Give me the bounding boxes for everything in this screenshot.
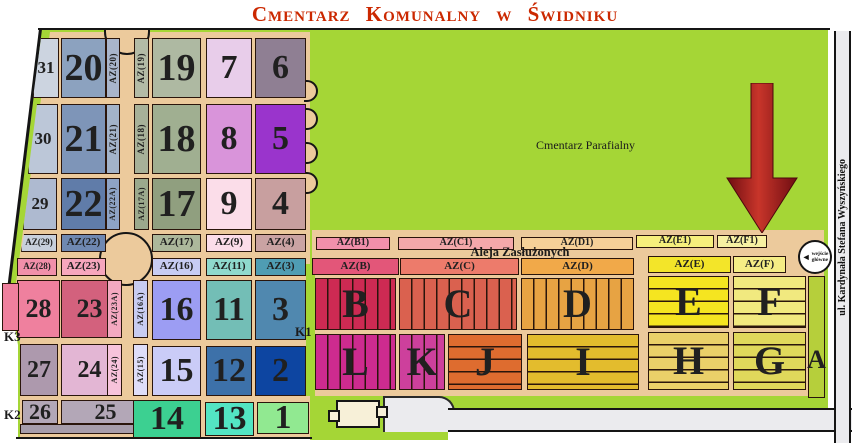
label-azb-label: AZ(B) [341,262,371,271]
section-21-label: 21 [65,123,103,155]
label-az28-label: AZ(28) [23,263,51,271]
section-f-label: F [757,285,781,319]
strip-az21: AZ(21) [106,104,120,174]
section-20: 20 [61,38,106,98]
section-16-label: 16 [160,296,194,325]
section-e-label: E [675,285,702,319]
section-28-label: 28 [26,298,52,320]
section-i: I [527,334,639,390]
section-a: A [808,276,825,398]
strip-az17a-label: AZ(17A) [138,187,146,221]
building-knob-left [328,410,340,422]
section-23-label: 23 [77,298,103,320]
section-h: H [648,332,729,390]
label-azf1-label: AZ(F1) [726,237,758,246]
section-d-label: D [563,287,592,321]
section-3-label: 3 [272,296,289,325]
strip-az16a-label: AZ(16A) [137,292,145,326]
section-1-label: 1 [275,404,292,433]
label-az11-label: AZ(11) [213,262,246,271]
label-az17-label: AZ(17) [160,238,194,247]
section-6: 6 [255,38,306,98]
strip-az20-label: AZ(20) [109,53,118,84]
section-k: K [399,334,445,390]
section-b-label: B [342,287,369,321]
section-8-label: 8 [221,125,238,154]
section-8: 8 [206,104,252,174]
section-29-label: 29 [32,197,49,211]
label-az16-label: AZ(16) [160,262,194,271]
label-azc-label: AZ(C) [444,262,475,271]
section-19-label: 19 [158,52,196,84]
entrance-label: wejście główne [812,251,829,263]
section-22-label: 22 [65,188,103,220]
section-h-label: H [673,344,704,378]
location-arrow-icon [726,83,798,233]
section-4: 4 [255,178,306,230]
section-13-label: 13 [213,405,247,434]
label-az16: AZ(16) [152,258,201,276]
section-16: 16 [152,280,201,340]
section-24-label: 24 [78,360,102,380]
parish-cemetery-label: Cmentarz Parafialny [536,138,635,153]
strip-az15-label: AZ(15) [137,356,145,383]
section-17-label: 17 [158,188,196,220]
label-az17: AZ(17) [152,234,201,252]
path-roundabout [99,232,153,286]
label-azf: AZ(F) [733,256,786,273]
label-azb1-label: AZ(B1) [337,239,369,248]
label-aze: AZ(E) [648,256,731,273]
section-2: 2 [255,346,306,396]
section-l-label: L [342,345,369,379]
label-aze-label: AZ(E) [675,260,705,269]
section-f: F [733,276,806,328]
label-aze1: AZ(E1) [636,235,714,248]
strip-az22a: AZ(22A) [106,178,120,230]
label-az4-label: AZ(4) [266,238,294,247]
section-b: B [315,278,396,330]
gate-k2-label: K2 [4,407,21,423]
label-azd: AZ(D) [521,258,634,275]
section-g-label: G [754,344,785,378]
label-azb1: AZ(B1) [316,237,390,250]
section-d: D [521,278,634,330]
section-9: 9 [206,178,252,230]
section-22: 22 [61,178,106,230]
aleja-zasluzonych-label: Aleja Zasłużonych [420,245,620,260]
section-31-label: 31 [38,61,55,75]
label-az23-label: AZ(23) [67,262,101,271]
cemetery-map: Cmentarz Komunalny w Świdniku 3120AZ(20)… [0,0,852,443]
label-az22: AZ(22) [61,234,106,252]
label-azf1: AZ(F1) [717,235,767,248]
section-18-label: 18 [158,123,196,155]
bottom-road [448,408,852,432]
section-28: 28 [17,280,60,338]
gate-k1-label: K1 [295,324,312,340]
label-az3-label: AZ(3) [266,262,294,271]
label-aze1-label: AZ(E1) [659,237,691,246]
label-azf-label: AZ(F) [745,260,774,269]
section-j: J [448,334,522,390]
section-2-label: 2 [272,357,289,386]
label-az11: AZ(11) [206,258,252,276]
strip-az24: AZ(24) [107,344,122,396]
strip-az16a: AZ(16A) [133,280,148,338]
strip-az24-label: AZ(24) [111,356,119,383]
section-5: 5 [255,104,306,174]
section-c-label: C [444,287,473,321]
strip-az22a-label: AZ(22A) [109,187,117,221]
label-az29-label: AZ(29) [25,239,53,247]
entrance-arrow-icon: ◄ [802,253,811,262]
strip-az20: AZ(20) [106,38,120,98]
main-entrance-marker: ◄ wejście główne [798,240,832,274]
label-az4: AZ(4) [255,234,306,252]
label-az28: AZ(28) [17,258,57,276]
strip-az19: AZ(19) [134,38,149,98]
label-az9-label: AZ(9) [215,238,243,247]
map-top-border [38,28,830,30]
street-name-label: ul. Kardynała Stefana Wyszyńskiego [837,159,848,316]
street-road: ul. Kardynała Stefana Wyszyńskiego [834,31,851,443]
label-az29: AZ(29) [21,234,57,252]
section-g: G [733,332,806,390]
strip-az19-label: AZ(19) [137,53,146,84]
label-az23: AZ(23) [61,258,106,276]
strip-az18: AZ(18) [134,104,149,174]
section-9-label: 9 [221,190,238,219]
section-26: 26 [22,400,58,424]
section-6-label: 6 [272,54,289,83]
edge-strip-2625 [20,424,150,434]
section-13: 13 [205,402,254,436]
driveway [383,396,455,432]
section-14: 14 [133,400,201,438]
section-15: 15 [152,346,201,396]
label-az3: AZ(3) [255,258,306,276]
section-1: 1 [257,402,309,434]
label-azb: AZ(B) [312,258,399,275]
gate-k3-label: K3 [4,329,21,345]
section-14-label: 14 [150,405,184,434]
section-21: 21 [61,104,106,174]
section-e: E [648,276,729,328]
section-12: 12 [206,346,252,396]
section-4-label: 4 [272,190,289,219]
section-i-label: I [575,345,591,379]
section-11-label: 11 [213,296,245,325]
section-20-label: 20 [65,52,103,84]
strip-az23a: AZ(23A) [107,280,122,338]
strip-az21-label: AZ(21) [109,124,118,155]
section-12-label: 12 [212,357,246,386]
section-k-label: K [406,345,437,379]
section-26-label: 26 [29,403,51,422]
section-25-label: 25 [95,403,117,422]
strip-az17a: AZ(17A) [134,178,149,230]
section-5-label: 5 [272,125,289,154]
section-17: 17 [152,178,201,230]
section-c: C [399,278,517,330]
section-27-label: 27 [27,360,51,380]
section-7-label: 7 [221,54,238,83]
section-18: 18 [152,104,201,174]
section-15-label: 15 [160,357,194,386]
chapel-building [336,400,380,428]
label-azc: AZ(C) [400,258,519,275]
strip-az18-label: AZ(18) [137,124,146,155]
section-19: 19 [152,38,201,98]
section-a-label: A [807,349,826,371]
building-knob-right [376,406,388,418]
section-7: 7 [206,38,252,98]
page-title: Cmentarz Komunalny w Świdniku [40,2,830,27]
label-az22-label: AZ(22) [67,238,101,247]
section-11: 11 [206,280,252,340]
label-az9: AZ(9) [206,234,252,252]
strip-az23a-label: AZ(23A) [111,292,119,326]
section-l: L [315,334,396,390]
section-30-label: 30 [35,132,52,146]
section-27: 27 [20,344,58,396]
label-azd-label: AZ(D) [562,262,593,271]
strip-az15: AZ(15) [133,344,148,396]
section-j-label: J [475,345,495,379]
section-28-annex [2,283,19,331]
